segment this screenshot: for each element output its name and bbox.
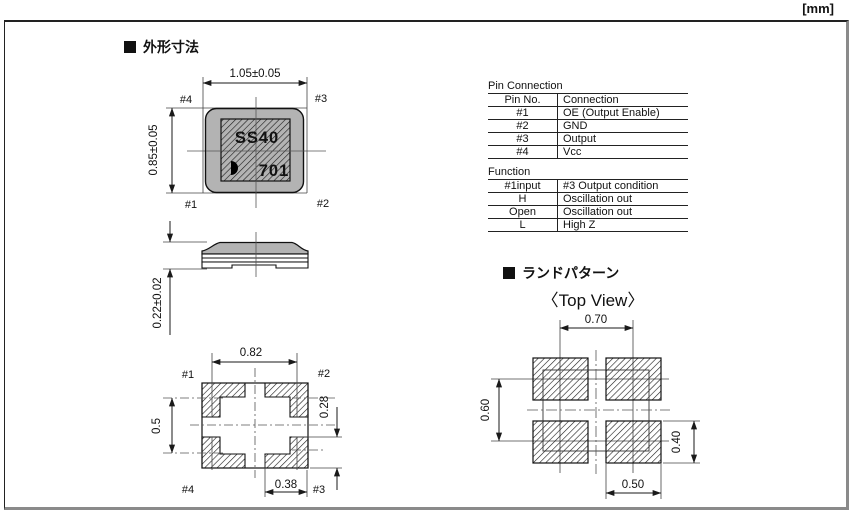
dim-pitch-label: 0.5 — [151, 418, 163, 434]
pin-label-3: #3 — [315, 93, 327, 105]
package-side-view: 0.22±0.02 — [152, 221, 308, 335]
land-pads — [533, 358, 661, 463]
land-pad-top-left — [533, 358, 588, 400]
land-pad-bottom-left — [533, 421, 588, 463]
side-view-lid — [202, 243, 308, 255]
dim-land-pad-height-label: 0.40 — [671, 431, 683, 453]
land-extension-lines — [491, 320, 700, 499]
side-view-base-feet — [202, 262, 308, 268]
package-top-view: SS40 701 1.05±0.05 0.85±0.05 #4 #3 #1 #2 — [148, 68, 329, 211]
dim-height-label: 0.85±0.05 — [148, 124, 160, 175]
pin-label-4: #4 — [180, 94, 192, 106]
pin-label-2: #2 — [317, 198, 329, 210]
dim-land-pad-width-label: 0.50 — [622, 479, 644, 491]
pin-label-1: #1 — [185, 199, 197, 211]
land-pattern-view: 0.70 0.60 0.40 0.50 — [480, 314, 700, 499]
dim-land-pitch-y-label: 0.60 — [480, 399, 492, 421]
dim-pad-height-label: 0.28 — [319, 396, 331, 418]
pin-label-1: #1 — [182, 369, 194, 381]
pin-label-4: #4 — [182, 484, 194, 496]
land-pad-bottom-right — [606, 421, 661, 463]
dim-width-label: 1.05±0.05 — [229, 68, 280, 80]
land-pad-top-right — [606, 358, 661, 400]
dim-land-pitch-x-label: 0.70 — [585, 314, 607, 326]
marking-text-line1: SS40 — [235, 129, 279, 147]
dim-pad-width-label: 0.38 — [275, 479, 297, 491]
pin-label-3: #3 — [313, 484, 325, 496]
technical-drawing-canvas: SS40 701 1.05±0.05 0.85±0.05 #4 #3 #1 #2… — [0, 0, 852, 517]
side-view-extension-lines — [163, 242, 207, 269]
dim-thickness-label: 0.22±0.02 — [152, 277, 164, 328]
package-bottom-view: 0.82 0.5 0.28 0.38 #1 #2 #4 #3 — [151, 347, 342, 497]
dim-pad-span-label: 0.82 — [240, 347, 262, 359]
land-dimension-lines — [499, 328, 694, 493]
marking-text-line2: 701 — [259, 162, 290, 180]
pin-label-2: #2 — [318, 368, 330, 380]
